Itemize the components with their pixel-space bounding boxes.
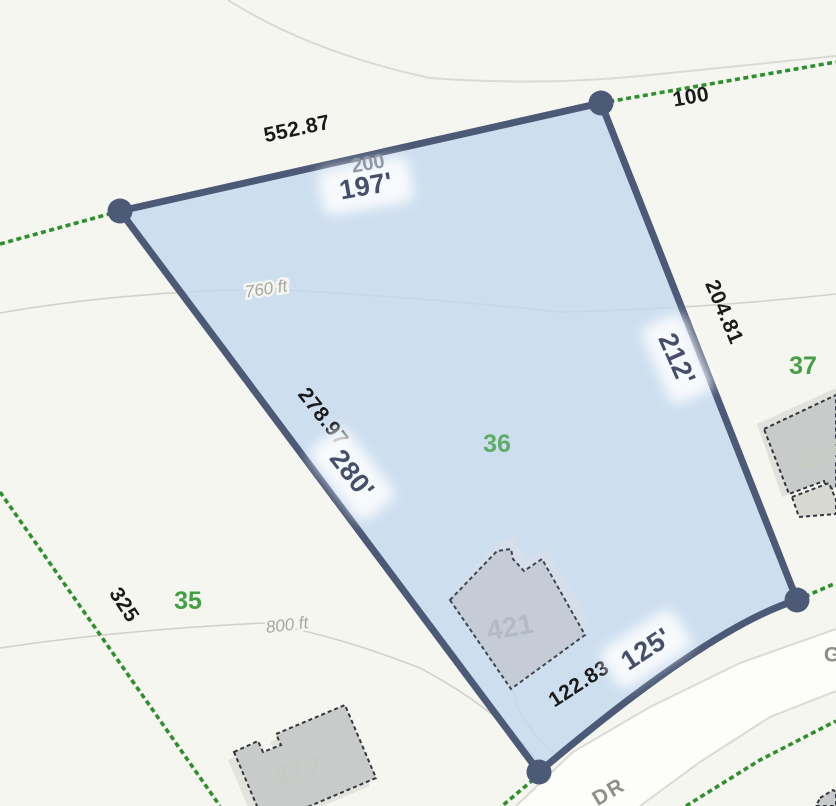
lot-number-36: 36 xyxy=(483,430,511,458)
parcel-vertex-south[interactable] xyxy=(527,760,552,785)
parcel-vertex-west[interactable] xyxy=(108,199,133,224)
lot-number-37: 37 xyxy=(789,352,817,380)
map-svg[interactable]: 417 425 421 760 ft 800 ft 36 35 37 552.8… xyxy=(0,0,836,806)
road-name-partial-letter: G xyxy=(824,644,836,667)
lot-number-35: 35 xyxy=(174,587,202,615)
parcel-map-canvas[interactable]: 417 425 421 760 ft 800 ft 36 35 37 552.8… xyxy=(0,0,836,806)
parcel-vertex-north[interactable] xyxy=(589,91,614,116)
parcel-vertex-east[interactable] xyxy=(785,588,810,613)
